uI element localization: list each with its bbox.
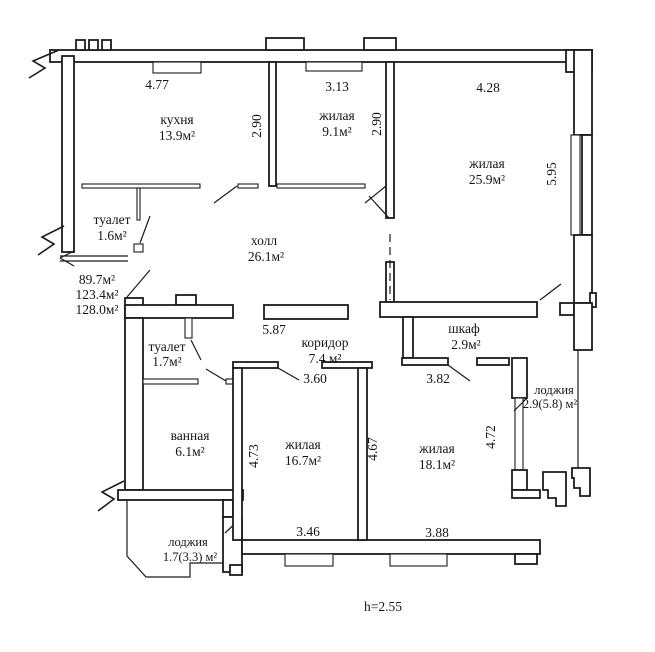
loggia-left-pier-step [230, 565, 242, 575]
toilet-upper-wall [137, 188, 140, 220]
area-summary-line-1: 89.7м² [79, 272, 115, 287]
wall-tooth-1 [76, 40, 85, 50]
living-right-window [390, 554, 447, 566]
loggia-left-area-label: 1.7(3.3) м² [163, 550, 218, 564]
living-right-area-label: 18.1м² [419, 457, 455, 472]
living-large-bottom-wall [380, 302, 537, 317]
wall-bump-right [364, 38, 396, 50]
living-small-area-label: 9.1м² [322, 124, 351, 139]
loggia-right-area-label: 2.9(5.8) м² [523, 397, 578, 411]
wall-right-behind-window [582, 135, 592, 235]
living-large-window [571, 135, 580, 235]
kitchen-bottom-wall-stub [238, 184, 258, 188]
toilet-lower-area-label: 1.7м² [152, 354, 181, 369]
wall-right-tab [560, 303, 574, 315]
dim-mid-wall: 5.87 [262, 322, 286, 337]
dim-kitchen-side: 2.90 [249, 114, 264, 138]
kitchen-area-label: 13.9м² [159, 128, 195, 143]
closet-door-swing [448, 365, 470, 381]
area-summary-line-3: 128.0м² [76, 302, 119, 317]
living-mid-door-swing [278, 368, 299, 380]
toilet-upper-name-label: туалет [93, 212, 130, 227]
wall-bump-lower [176, 295, 196, 305]
kitchen-bottom-wall [82, 184, 200, 188]
dim-corridor-left: 3.60 [303, 371, 327, 386]
bathroom-area-label: 6.1м² [175, 444, 204, 459]
wall-left-band [62, 56, 74, 252]
dim-living-right-left: 4.67 [365, 437, 380, 461]
bottom-right-step-block [543, 472, 566, 506]
kitchen-living-partition [269, 62, 276, 186]
area-summary-line-2: 123.4м² [76, 287, 119, 302]
wall-right-upper [574, 50, 592, 135]
loggia-right-end-block [572, 468, 590, 496]
area-summary-leader-line [127, 270, 150, 297]
corridor-name-label: коридор [302, 335, 349, 350]
wall-bump-left [266, 38, 304, 50]
kitchen-name-label: кухня [160, 112, 193, 127]
living-large-area-label: 25.9м² [469, 172, 505, 187]
wall-right-lower [574, 303, 592, 350]
kitchen-door-swing [214, 186, 237, 203]
loggia-right-name-label: лоджия [534, 383, 574, 397]
closet-name-label: шкаф [448, 321, 480, 336]
corridor-area-label: 7.4 м² [309, 351, 342, 366]
living-partition-vertical [386, 62, 394, 218]
wall-top-band [50, 50, 590, 62]
living-small-door-swing [365, 186, 386, 203]
upper-partitions [82, 62, 394, 302]
dim-top-living-large: 4.28 [476, 80, 500, 95]
toilet-lower-wall-stub [185, 318, 192, 338]
kitchen-window [153, 62, 201, 73]
loggia-right-structure [512, 350, 590, 506]
wall-tooth-2 [89, 40, 98, 50]
toilet-upper-door-block [134, 244, 143, 252]
dim-living-right-side: 4.72 [483, 425, 498, 449]
living-mid-window [285, 554, 333, 566]
living-right-wall-upper [512, 358, 527, 398]
outer-wall-top [50, 38, 592, 73]
wall-left-lower [125, 318, 143, 490]
break-symbol-left-lower [38, 226, 64, 255]
ceiling-height-note: h=2.55 [364, 599, 402, 614]
bathroom-door-swing [206, 369, 226, 381]
toilet-lower-name-label: туалет [148, 339, 185, 354]
living-mid-left-wall [233, 368, 242, 540]
closet-area-label: 2.9м² [451, 337, 480, 352]
toilet-upper-door-swing [140, 216, 150, 243]
living-small-bottom-wall [277, 184, 365, 188]
loggia-right-bottom-wall [512, 490, 540, 498]
dim-living-large-side: 5.95 [544, 162, 559, 186]
dim-top-kitchen: 4.77 [145, 77, 169, 92]
hall-name-label: холл [251, 233, 278, 248]
outer-wall-right-upper [560, 50, 596, 350]
wall-bottom-end-block [515, 554, 537, 564]
wall-top-lower [125, 305, 233, 318]
dim-living-mid-left: 4.73 [246, 444, 261, 468]
living-mid-name-label: жилая [284, 437, 321, 452]
dim-top-living-small: 3.13 [325, 79, 349, 94]
closet-bottom-wall-left [402, 358, 448, 365]
toilet-lower-bottom-wall [143, 379, 198, 384]
dim-bottom-living-mid: 3.46 [296, 524, 320, 539]
living-large-name-label: жилая [468, 156, 505, 171]
toilet-upper-area-label: 1.6м² [97, 228, 126, 243]
living-large-se-door-swing [540, 284, 561, 300]
closet-bottom-wall-right [477, 358, 509, 365]
floor-plan-page: кухня 13.9м² жилая 9.1м² жилая 25.9м² ту… [0, 0, 655, 652]
living-small-name-label: жилая [318, 108, 355, 123]
loggia-left-name-label: лоджия [168, 535, 208, 549]
living-right-name-label: жилая [418, 441, 455, 456]
wall-bottom-band [242, 540, 540, 554]
area-summary-block: 89.7м² 123.4м² 128.0м² [76, 272, 119, 317]
dim-bottom-living-right: 3.88 [425, 525, 449, 540]
living-mid-area-label: 16.7м² [285, 453, 321, 468]
bathroom-bottom-wall [118, 490, 243, 500]
wall-cut-line [60, 251, 128, 266]
toilet-lower-door-swing [191, 340, 201, 360]
living-small-window [306, 62, 362, 71]
floor-plan-drawing: кухня 13.9м² жилая 9.1м² жилая 25.9м² ту… [0, 0, 655, 652]
closet-left-wall [403, 317, 413, 358]
dim-corridor-right: 3.82 [426, 371, 450, 386]
dim-living-small-side: 2.90 [369, 112, 384, 136]
mid-wall-segment [264, 305, 348, 319]
wall-tooth-3 [102, 40, 111, 50]
bathroom-bottom-step [223, 500, 233, 517]
hall-area-label: 26.1м² [248, 249, 284, 264]
bathroom-name-label: ванная [171, 428, 210, 443]
living-right-wall-lower [512, 470, 527, 490]
